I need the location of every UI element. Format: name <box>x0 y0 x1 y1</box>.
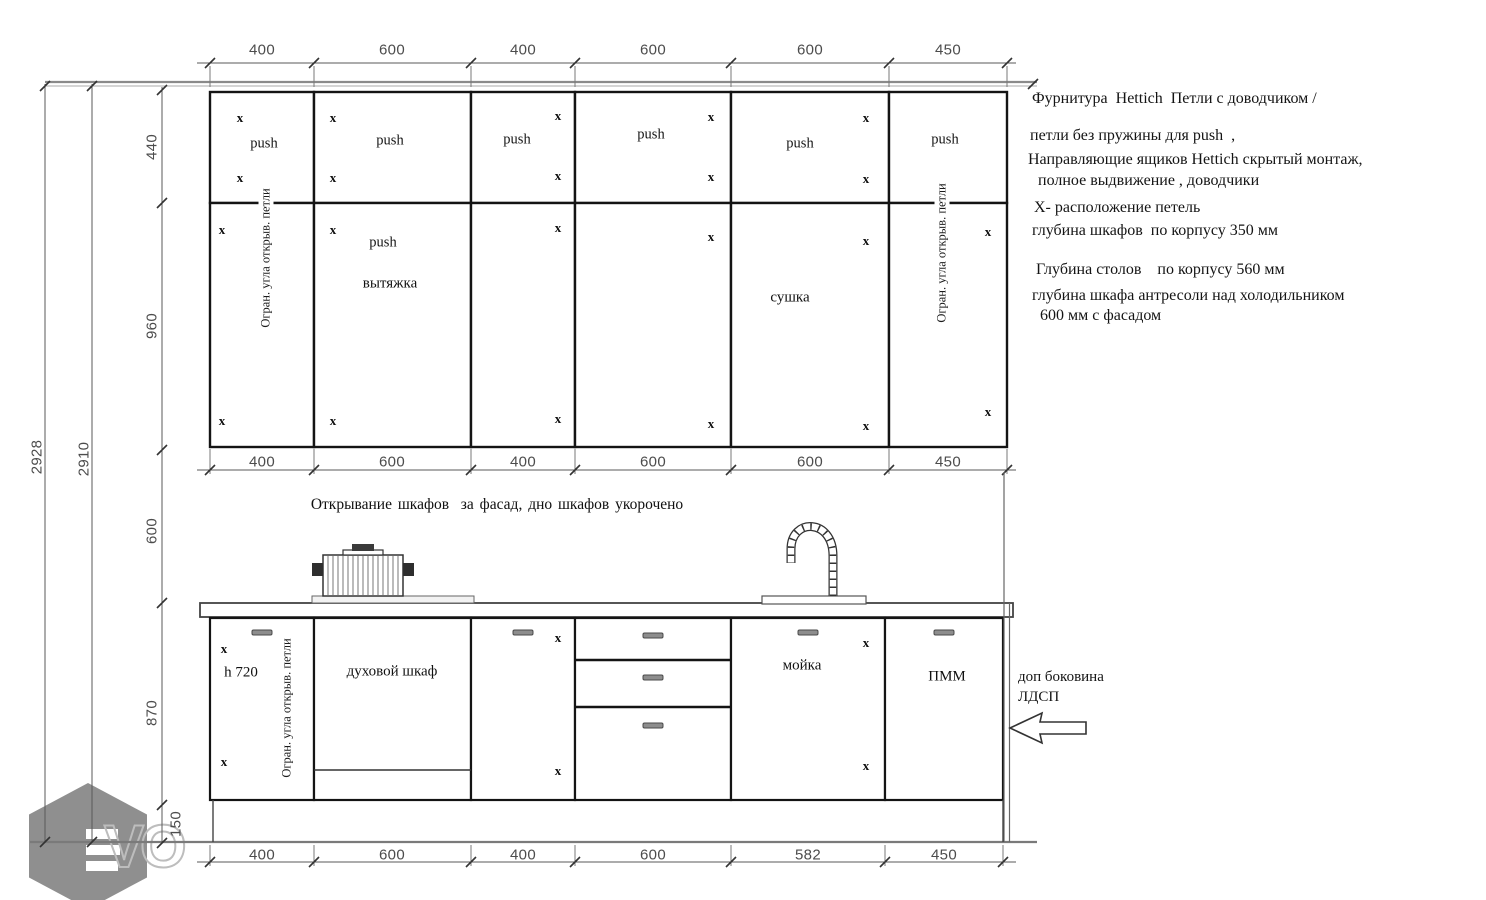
dim-label: 600 <box>640 454 666 471</box>
hinge-mark: x <box>863 171 870 187</box>
hinge-mark: x <box>708 416 715 432</box>
dim-label-section: 600 <box>144 518 161 544</box>
dim-label: 582 <box>795 847 821 864</box>
dim-label: 600 <box>640 42 666 59</box>
push-label: push <box>931 132 958 149</box>
spec-note-line: полное выдвижение , доводчики <box>1038 172 1259 190</box>
hinge-mark: x <box>219 413 226 429</box>
hinge-mark: x <box>708 229 715 245</box>
hinge-mark: x <box>555 108 562 124</box>
dim-label: 400 <box>510 847 536 864</box>
spec-note-line: глубина шкафов по корпусу 350 мм <box>1032 222 1278 240</box>
hinge-mark: x <box>221 641 228 657</box>
spec-note-line: Фурнитура Hettich Петли с доводчиком / <box>1032 90 1317 108</box>
hinge-mark: x <box>863 635 870 651</box>
hinge-mark: x <box>219 222 226 238</box>
hinge-mark: x <box>863 233 870 249</box>
dim-label-section: 870 <box>144 700 161 726</box>
dim-label: 600 <box>379 42 405 59</box>
spec-note-line: Х- расположение петель <box>1034 199 1200 217</box>
hinge-mark: x <box>708 169 715 185</box>
hinge-mark: x <box>330 110 337 126</box>
oven-cabinet-label: духовой шкаф <box>347 664 438 681</box>
dim-label: 600 <box>797 42 823 59</box>
dim-label: 400 <box>249 847 275 864</box>
hinge-mark: x <box>555 411 562 427</box>
opening-note: Открывание шкафов за фасад, дно шкафов у… <box>311 496 683 514</box>
hinge-mark: x <box>863 110 870 126</box>
text-layer: 400 600 400 600 600 450 400 600 400 600 … <box>0 0 1486 900</box>
dim-label-section: 440 <box>144 134 161 160</box>
hinge-mark: x <box>985 224 992 240</box>
dryer-cabinet-label: сушка <box>770 290 809 307</box>
dim-label: 450 <box>935 454 961 471</box>
push-label: push <box>250 136 277 153</box>
side-panel-note: ЛДСП <box>1018 687 1059 707</box>
hinge-mark: x <box>237 170 244 186</box>
dim-label: 450 <box>935 42 961 59</box>
base-height-label: h 720 <box>224 665 258 682</box>
hinge-limiter-note: Огран. угла открыв. петли <box>259 186 274 329</box>
hinge-limiter-note: Огран. угла открыв. петли <box>935 181 950 324</box>
hinge-mark: x <box>708 109 715 125</box>
dim-label: 600 <box>379 454 405 471</box>
push-label: push <box>637 127 664 144</box>
hinge-mark: x <box>555 168 562 184</box>
dim-label: 600 <box>379 847 405 864</box>
dim-label: 450 <box>931 847 957 864</box>
hinge-mark: x <box>555 220 562 236</box>
hinge-mark: x <box>330 222 337 238</box>
kitchen-elevation-drawing: VO <box>0 0 1486 900</box>
dim-label-total-height: 2910 <box>76 442 93 477</box>
push-label: push <box>786 136 813 153</box>
dim-label: 400 <box>510 42 536 59</box>
dim-label-section: 960 <box>144 313 161 339</box>
dim-label: 600 <box>797 454 823 471</box>
spec-note-line: 600 мм с фасадом <box>1040 307 1161 325</box>
dim-label-total-height: 2928 <box>29 440 46 475</box>
dim-label: 400 <box>249 42 275 59</box>
spec-note-line: петли без пружины для push , <box>1030 127 1235 145</box>
hinge-mark: x <box>221 754 228 770</box>
hinge-mark: x <box>555 630 562 646</box>
spec-note-line: Направляющие ящиков Hettich скрытый монт… <box>1028 151 1363 169</box>
dim-label: 400 <box>249 454 275 471</box>
dim-label-section: 150 <box>168 811 185 837</box>
hood-cabinet-label: вытяжка <box>363 276 418 293</box>
spec-note-line: Глубина столов по корпусу 560 мм <box>1036 261 1285 279</box>
push-label: push <box>503 132 530 149</box>
hinge-mark: x <box>985 404 992 420</box>
hinge-mark: x <box>863 758 870 774</box>
hinge-mark: x <box>555 763 562 779</box>
hinge-mark: x <box>863 418 870 434</box>
push-label: push <box>369 235 396 252</box>
dim-label: 600 <box>640 847 666 864</box>
hinge-mark: x <box>330 413 337 429</box>
spec-note-line: глубина шкафа антресоли над холодильнико… <box>1032 287 1345 305</box>
push-label: push <box>376 133 403 150</box>
hinge-mark: x <box>330 170 337 186</box>
dim-label: 400 <box>510 454 536 471</box>
side-panel-note: доп боковина <box>1018 667 1104 687</box>
hinge-mark: x <box>237 110 244 126</box>
sink-cabinet-label: мойка <box>783 658 822 675</box>
dishwasher-label: ПММ <box>928 669 966 686</box>
hinge-limiter-note: Огран. угла открыв. петли <box>280 636 295 779</box>
